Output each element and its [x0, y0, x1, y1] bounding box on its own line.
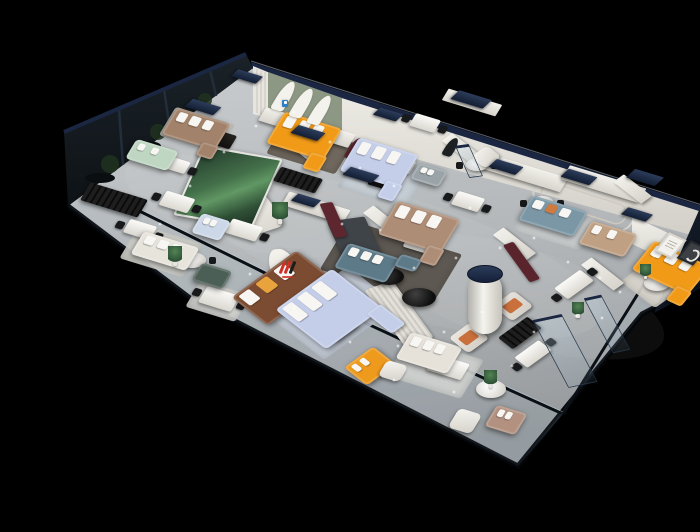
wall-cap-5	[373, 107, 404, 121]
ceiling-light	[292, 110, 296, 114]
glass-partition-2	[584, 295, 631, 354]
ceiling-light	[340, 222, 344, 226]
ceiling-light	[600, 316, 604, 320]
ceiling-light	[436, 220, 440, 224]
ceiling-light	[598, 276, 602, 280]
armchair-white-bottom-2	[448, 408, 483, 434]
ceiling-light	[498, 246, 502, 250]
desk-top-1	[409, 113, 441, 133]
ceiling-light	[292, 306, 296, 310]
ceiling-light	[222, 150, 226, 154]
ceiling-light	[452, 390, 456, 394]
ceiling-light	[412, 266, 416, 270]
ceiling-light	[358, 166, 362, 170]
ceiling-light	[442, 330, 446, 334]
ceiling-light	[480, 310, 484, 314]
ceiling-light	[454, 256, 458, 260]
ceiling-light	[392, 184, 396, 188]
ceiling-light	[348, 340, 352, 344]
ceiling-light	[468, 206, 472, 210]
plant-left-lounge	[168, 246, 182, 266]
ceiling-light	[532, 236, 536, 240]
ceiling-light	[254, 124, 258, 128]
ceiling-light	[396, 344, 400, 348]
ceiling-light	[158, 222, 162, 226]
ceiling-light	[188, 184, 192, 188]
round-table-black-2	[402, 288, 436, 307]
desk-right-1	[554, 270, 594, 300]
brand-logo-red	[280, 260, 296, 280]
showroom-render: 3D isometric cutaway render of a furnitu…	[40, 16, 700, 516]
ceiling-light	[574, 314, 578, 318]
ceiling-light	[618, 290, 622, 294]
console-black-left	[80, 182, 148, 217]
plant-terrarium-side	[272, 202, 288, 224]
plant-right-room	[640, 264, 651, 279]
ceiling-light	[652, 254, 656, 258]
column-cylinder	[468, 272, 502, 334]
ceiling-light	[566, 260, 570, 264]
ceiling-light	[248, 272, 252, 276]
ceiling-light	[392, 378, 396, 382]
sofa-taupe-bottom	[484, 405, 527, 436]
ceiling-light	[510, 364, 514, 368]
wall-center-spine	[281, 192, 350, 224]
ceiling-light	[328, 140, 332, 144]
brand-logo-blue	[282, 100, 288, 107]
ceiling-light	[378, 228, 382, 232]
wall-cap-10	[621, 207, 653, 222]
sofa-tan-right	[578, 220, 638, 257]
ceiling-light	[532, 330, 536, 334]
wall-stub-5	[581, 257, 624, 290]
plant-bottom-table	[484, 370, 497, 388]
wall-cap-2	[231, 69, 263, 84]
furniture-layer	[40, 16, 700, 516]
